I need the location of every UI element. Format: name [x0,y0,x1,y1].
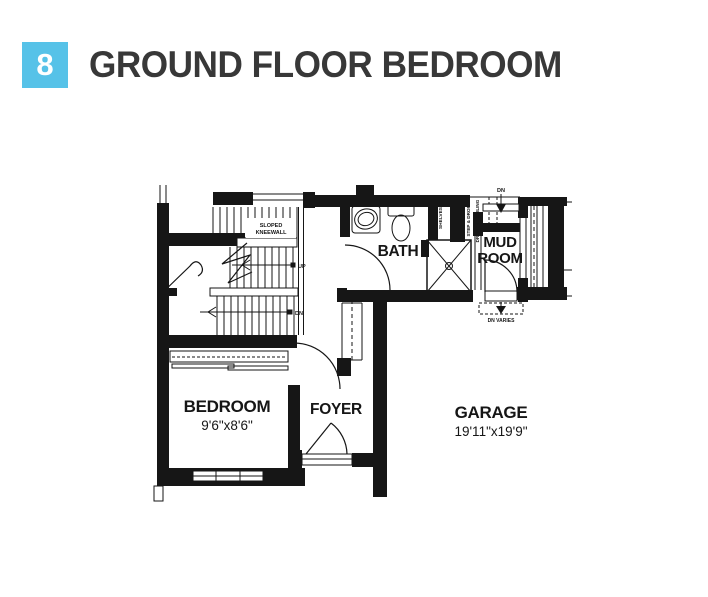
step-and-drop-label: STEP & DROP [466,205,471,236]
up-arrow-label: UP [298,264,306,270]
sloped-kneewall-note-line1: SLOPED [260,223,283,229]
garage-dimensions: 19'11"x19'9" [454,424,527,439]
dn-stairs-label: DN [295,311,303,317]
bedroom-label: BEDROOM [184,397,271,416]
floor-plan-page: 8 GROUND FLOOR BEDROOM [0,0,708,597]
shelves-label: SHELVES [438,206,444,229]
labels-layer: BEDROOM 9'6"x8'6" FOYER BATH MUD ROOM GA… [184,188,528,439]
bath-label: BATH [378,243,419,260]
floor-plan-drawing: BEDROOM 9'6"x8'6" FOYER BATH MUD ROOM GA… [0,0,708,597]
dn-landing-label: DN [497,188,505,194]
foyer-label: FOYER [310,401,362,418]
dropped-ceiling-label: DROPPED CEILING [475,199,480,242]
sloped-kneewall-note-line2: KNEEWALL [256,230,288,236]
mud-room-label-line2: ROOM [477,250,522,267]
mud-room-label-line1: MUD [483,234,517,251]
dn-varies-label: DN VARIES [488,318,516,324]
bedroom-dimensions: 9'6"x8'6" [201,418,253,433]
garage-label: GARAGE [455,403,528,422]
